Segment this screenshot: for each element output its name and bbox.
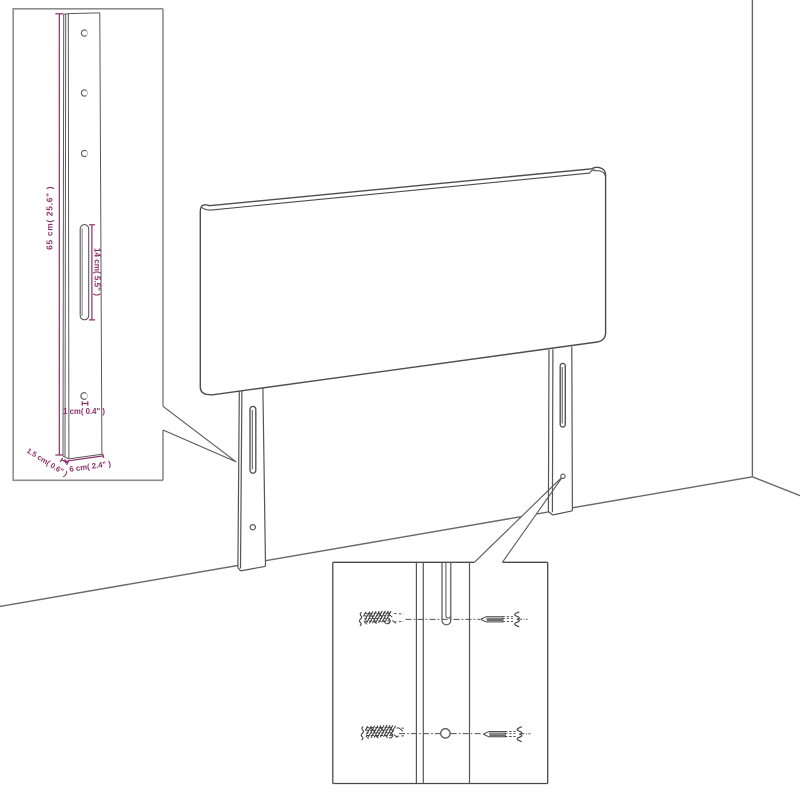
svg-text:14 cm( 5.5" ): 14 cm( 5.5" ) <box>92 248 101 296</box>
svg-text:1 cm( 0.4" ): 1 cm( 0.4" ) <box>63 407 105 416</box>
svg-text:65 cm( 25.6" ): 65 cm( 25.6" ) <box>45 186 55 250</box>
